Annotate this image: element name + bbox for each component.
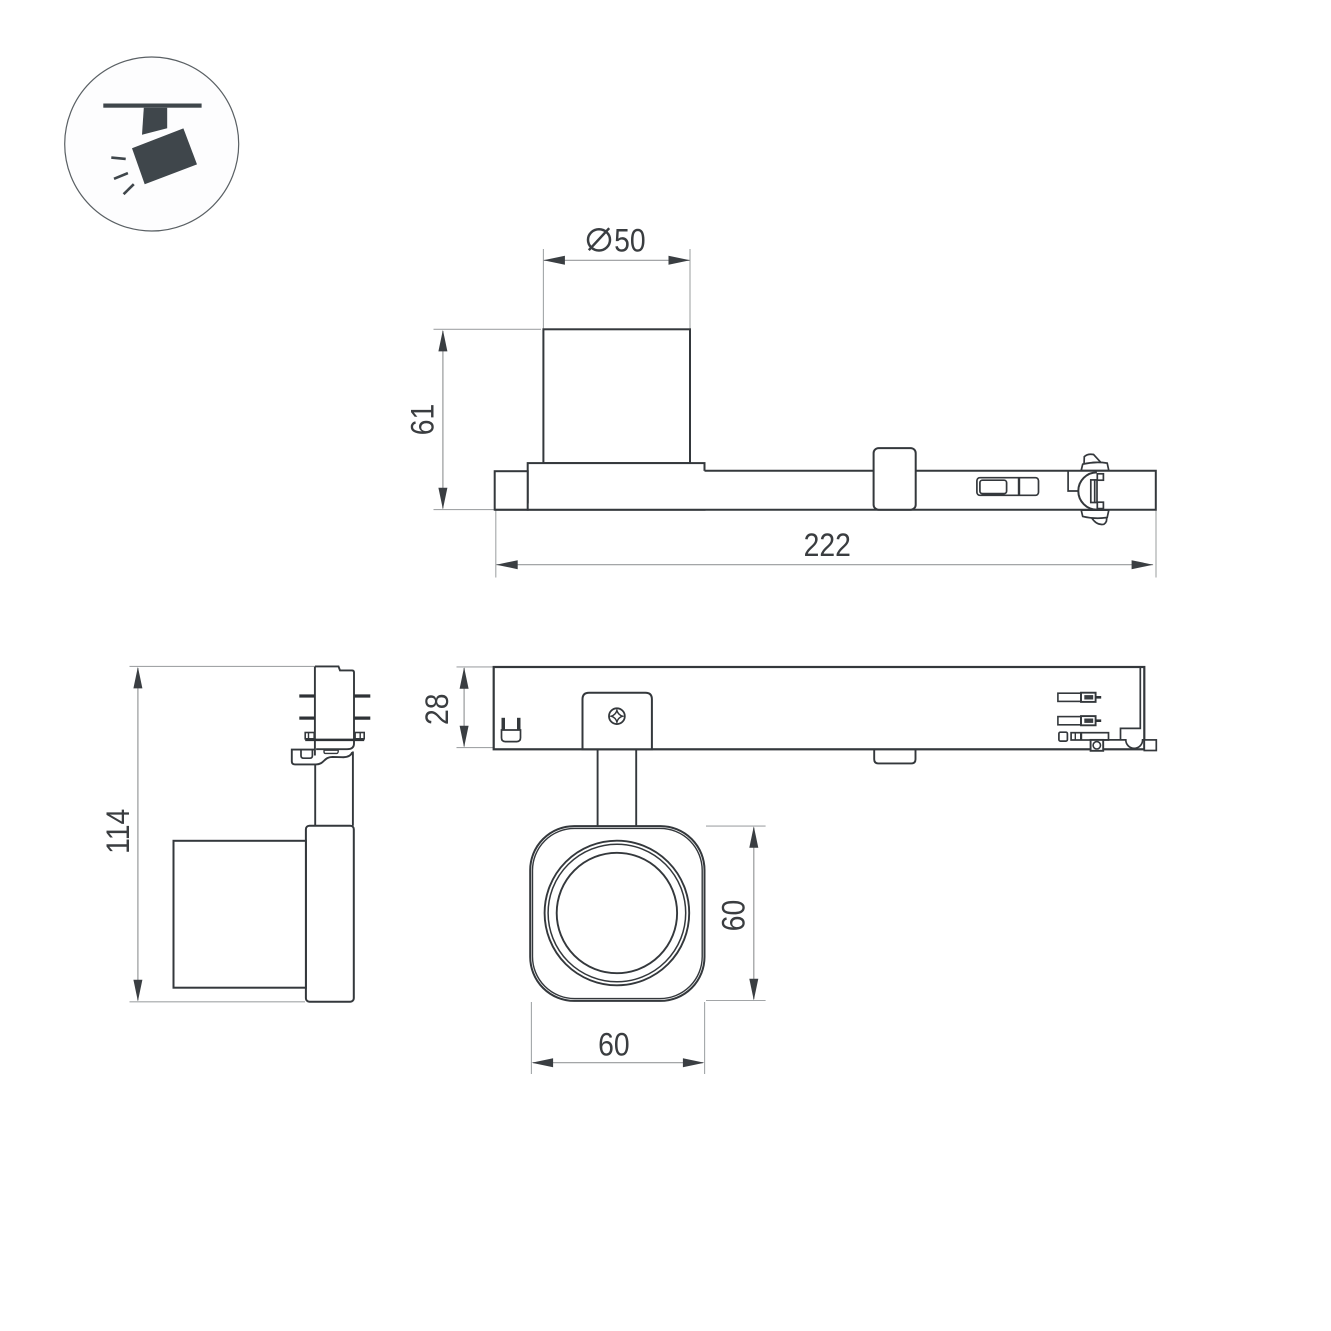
svg-text:28: 28 [420, 693, 455, 725]
svg-text:114: 114 [101, 809, 136, 854]
svg-text:222: 222 [804, 528, 851, 563]
svg-text:60: 60 [717, 900, 752, 932]
svg-text:60: 60 [598, 1028, 630, 1063]
svg-text:61: 61 [406, 404, 441, 436]
svg-text:50: 50 [614, 224, 646, 259]
